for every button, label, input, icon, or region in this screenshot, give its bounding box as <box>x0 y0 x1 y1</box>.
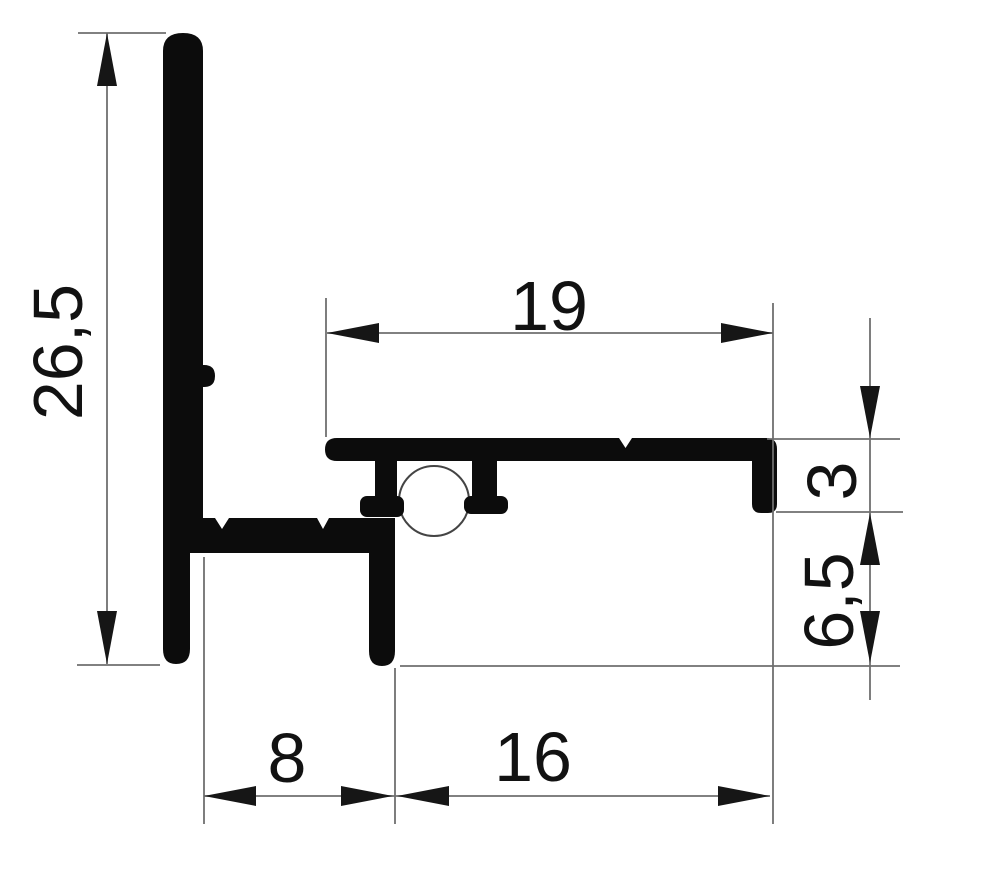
left-profile <box>163 33 395 666</box>
wall-bar-protrusion <box>199 365 215 387</box>
channel-stub-right-stem <box>472 460 497 498</box>
profile-cross-section-drawing: 26,5 19 3 6,5 8 16 <box>0 0 1000 874</box>
channel-stub-left-stem <box>375 460 397 498</box>
arrow-left-bottom-left-width <box>204 786 256 806</box>
top-flange <box>325 438 777 461</box>
gasket-circle <box>399 466 469 536</box>
technical-drawing-canvas: 26,5 19 3 6,5 8 16 <box>0 0 1000 874</box>
right-profile <box>325 438 777 517</box>
dim-label-edge-height: 3 <box>793 462 871 501</box>
dim-label-overall-height: 26,5 <box>19 284 97 420</box>
arrowheads <box>97 33 880 806</box>
bottom-arm <box>203 518 395 553</box>
arrow-right-bottom-left-width <box>341 786 393 806</box>
dim-label-leg-height: 6,5 <box>790 552 868 649</box>
dim-label-top-width: 19 <box>510 267 588 345</box>
arrow-right-bottom-right-width <box>718 786 770 806</box>
arrow-down-edge-height <box>860 386 880 438</box>
wall-bar <box>163 33 203 664</box>
gasket-group <box>399 466 469 536</box>
dim-label-bottom-right-width: 16 <box>494 718 572 796</box>
dimension-lines <box>107 33 870 796</box>
bottom-leg <box>369 553 395 666</box>
arrow-down-overall-height <box>97 611 117 664</box>
arrow-up-overall-height <box>97 33 117 86</box>
arrow-left-top-width <box>327 323 379 343</box>
channel-stub-left-foot <box>360 496 404 517</box>
arrow-left-bottom-right-width <box>397 786 449 806</box>
channel-stub-right-foot <box>464 496 508 514</box>
dim-label-bottom-left-width: 8 <box>268 719 307 797</box>
arrow-right-top-width <box>721 323 773 343</box>
